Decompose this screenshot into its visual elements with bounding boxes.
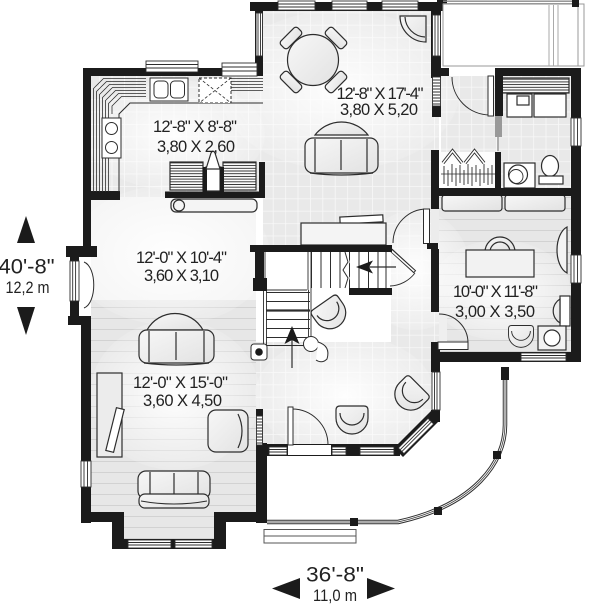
svg-text:40'-8": 40'-8" bbox=[0, 256, 55, 279]
svg-text:12'-0" X 15'-0": 12'-0" X 15'-0" bbox=[133, 374, 228, 392]
svg-text:3,60 X 3,10: 3,60 X 3,10 bbox=[144, 267, 219, 285]
svg-text:10'-0" X 11'-8": 10'-0" X 11'-8" bbox=[453, 283, 538, 301]
svg-text:12,2 m: 12,2 m bbox=[6, 279, 50, 297]
svg-text:11,0 m: 11,0 m bbox=[313, 587, 357, 605]
svg-text:12'-0" X 10'-4": 12'-0" X 10'-4" bbox=[136, 249, 227, 267]
svg-text:36'-8": 36'-8" bbox=[306, 564, 364, 587]
svg-text:3,80 X 2,60: 3,80 X 2,60 bbox=[157, 138, 235, 156]
svg-text:3,60 X 4,50: 3,60 X 4,50 bbox=[143, 392, 222, 410]
svg-text:3,00 X 3,50: 3,00 X 3,50 bbox=[455, 303, 535, 321]
svg-text:3,80 X 5,20: 3,80 X 5,20 bbox=[340, 101, 418, 119]
svg-text:12'-8" X 8'-8": 12'-8" X 8'-8" bbox=[153, 118, 237, 136]
